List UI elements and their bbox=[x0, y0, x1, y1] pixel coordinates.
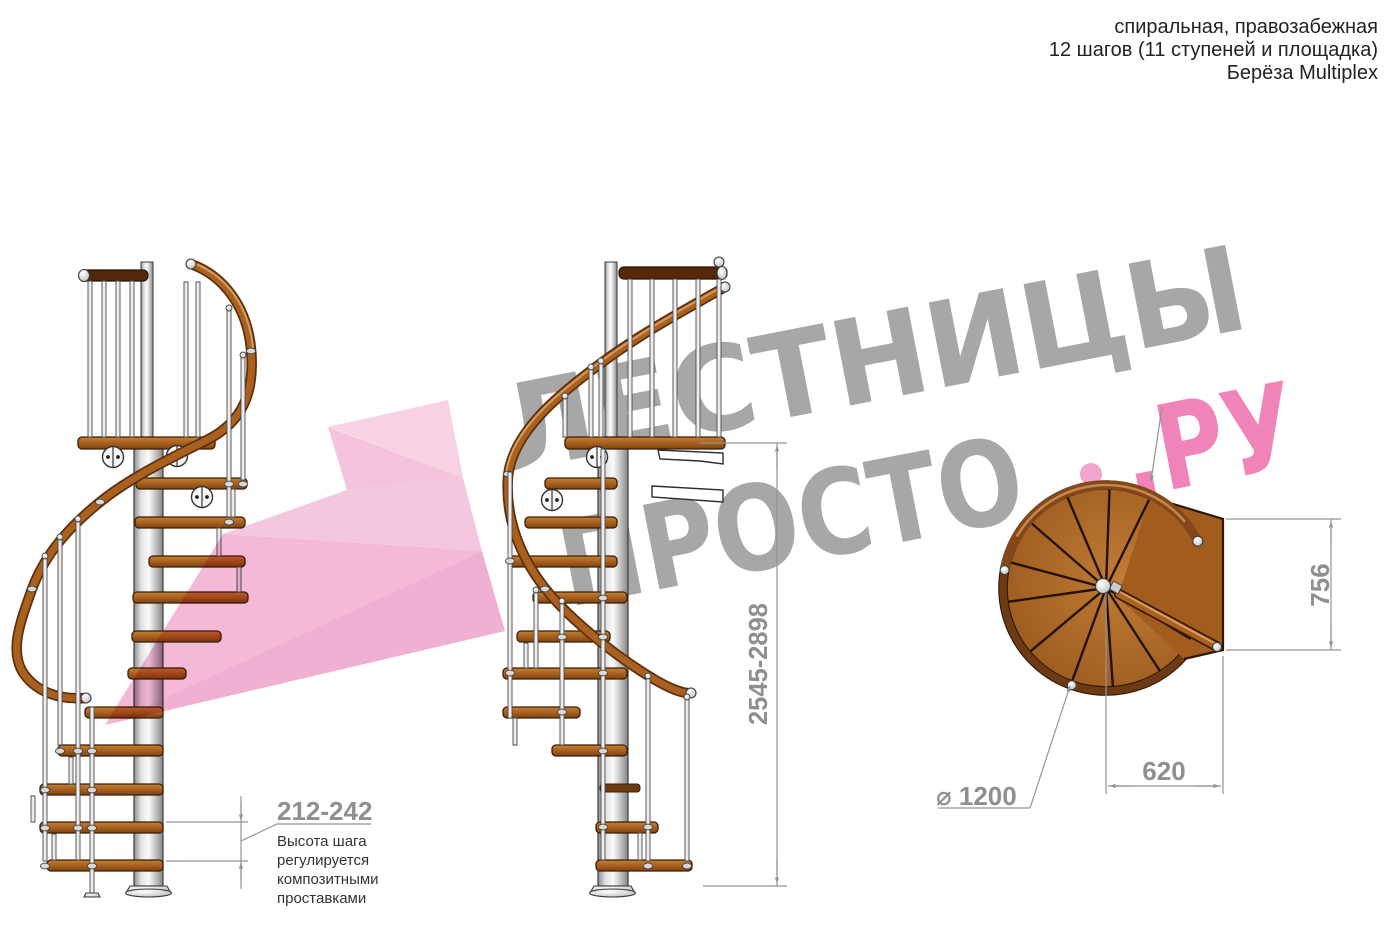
drawing-canvas: ЛЕСТНИЦЫ ПРОСТО .РУ bbox=[0, 0, 1400, 940]
dimension-landing-depth-value: 756 bbox=[1305, 563, 1335, 606]
title-block: спиральная, правозабежная 12 шагов (11 с… bbox=[1049, 16, 1378, 84]
step-height-note-line2: регулируется bbox=[277, 852, 369, 869]
step bbox=[503, 707, 580, 718]
landing-guardrail bbox=[619, 267, 727, 279]
mounting-plate bbox=[542, 490, 563, 511]
dimension-step-height: 212-242 Высота шага регулируется компози… bbox=[166, 796, 379, 907]
title-line2: 12 шагов (11 ступеней и площадка) bbox=[1049, 39, 1378, 61]
plan-center-column-hub bbox=[1096, 579, 1111, 594]
dimension-diameter-value: ⌀ 1200 bbox=[936, 781, 1017, 811]
dimension-landing-width-value: 620 bbox=[1142, 756, 1185, 786]
mounting-plate bbox=[103, 447, 124, 468]
step bbox=[40, 822, 163, 833]
staircase-plan-view bbox=[999, 481, 1223, 695]
step bbox=[545, 478, 617, 489]
center-column-post bbox=[141, 262, 153, 442]
step bbox=[552, 745, 627, 756]
step bbox=[40, 784, 163, 795]
landing-guardrail bbox=[80, 270, 148, 281]
dimension-diameter: ⌀ 1200 bbox=[936, 686, 1070, 811]
title-line3: Берёза Multiplex bbox=[1227, 62, 1378, 84]
step bbox=[47, 860, 163, 871]
step-height-note-line1: Высота шага bbox=[277, 833, 367, 850]
staircase-drawing-page: ЛЕСТНИЦЫ ПРОСТО .РУ bbox=[0, 0, 1400, 940]
step-height-note-line4: проставками bbox=[277, 890, 366, 907]
step bbox=[600, 784, 640, 792]
step-height-note-line3: композитными bbox=[277, 871, 379, 888]
title-line1: спиральная, правозабежная bbox=[1114, 16, 1378, 38]
dimension-total-height-value: 2545-2898 bbox=[743, 603, 773, 725]
dimension-landing-depth: 756 bbox=[1226, 519, 1341, 650]
plan-handrail-end-cap bbox=[1193, 536, 1203, 546]
step bbox=[503, 668, 627, 679]
mounting-plate bbox=[192, 487, 213, 508]
dimension-step-height-value: 212-242 bbox=[277, 796, 372, 826]
